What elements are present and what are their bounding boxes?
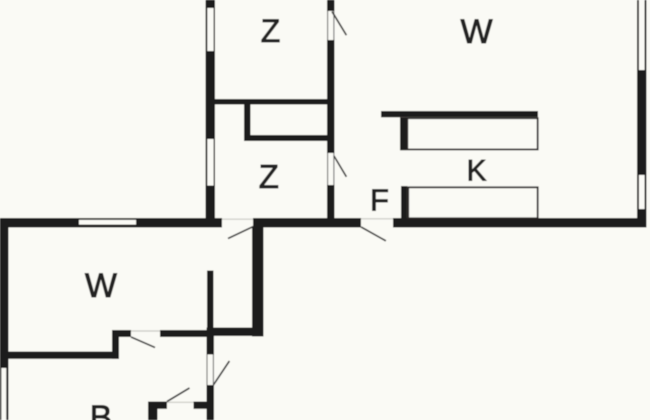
svg-text:B: B: [90, 399, 113, 420]
svg-text:W: W: [460, 13, 492, 51]
svg-text:F: F: [370, 183, 389, 218]
svg-text:K: K: [466, 154, 486, 187]
svg-text:Z: Z: [261, 13, 281, 49]
svg-text:W: W: [85, 267, 117, 305]
svg-text:Z: Z: [259, 158, 279, 195]
